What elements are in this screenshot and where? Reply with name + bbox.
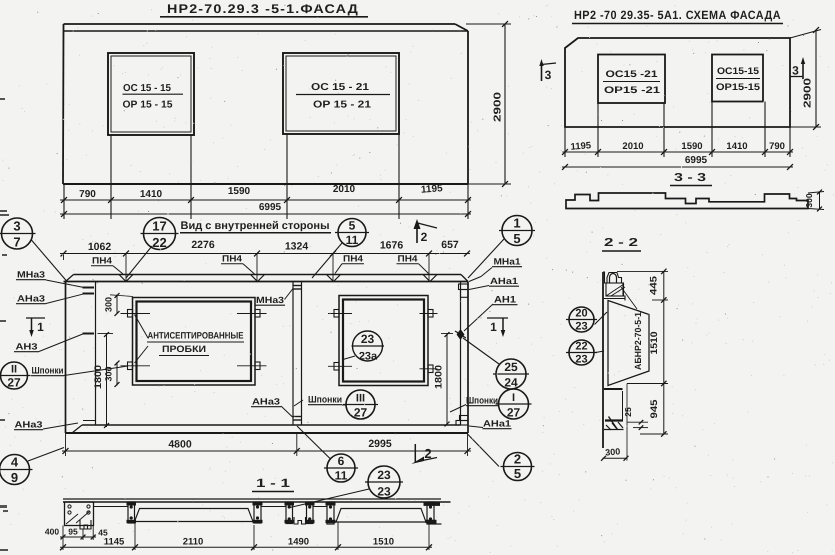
- svg-text:ОС15-15: ОС15-15: [717, 66, 760, 77]
- svg-text:Шпонки: Шпонки: [32, 366, 64, 377]
- svg-text:20: 20: [575, 308, 587, 320]
- svg-text:ПРОБКИ: ПРОБКИ: [162, 344, 206, 354]
- svg-text:17: 17: [152, 219, 166, 234]
- svg-text:23: 23: [575, 354, 587, 366]
- svg-text:657: 657: [441, 239, 459, 251]
- svg-text:1590: 1590: [681, 141, 702, 152]
- svg-text:2 - 2: 2 - 2: [604, 237, 638, 249]
- svg-text:МНа1: МНа1: [494, 257, 521, 267]
- svg-text:2: 2: [421, 230, 428, 244]
- svg-text:ОС 15 - 21: ОС 15 - 21: [311, 82, 370, 93]
- svg-text:5: 5: [349, 219, 356, 233]
- svg-text:22: 22: [575, 341, 587, 353]
- svg-text:25: 25: [623, 407, 633, 417]
- svg-text:22: 22: [152, 235, 166, 250]
- svg-text:2010: 2010: [622, 141, 643, 152]
- svg-text:1: 1: [37, 320, 44, 334]
- svg-text:5: 5: [514, 466, 521, 481]
- svg-text:1195: 1195: [570, 140, 592, 152]
- svg-text:790: 790: [79, 189, 96, 200]
- svg-text:2010: 2010: [333, 184, 356, 195]
- svg-text:2900: 2900: [493, 91, 504, 122]
- svg-text:ОС 15 - 15: ОС 15 - 15: [123, 83, 171, 94]
- svg-text:1410: 1410: [140, 189, 163, 200]
- svg-text:300: 300: [804, 193, 814, 207]
- svg-text:790: 790: [769, 141, 785, 152]
- svg-text:Шпонки: Шпонки: [466, 396, 498, 407]
- svg-text:11: 11: [346, 233, 359, 247]
- svg-text:ОР 15 - 15: ОР 15 - 15: [123, 100, 173, 111]
- svg-text:ПН4: ПН4: [222, 254, 242, 264]
- svg-text:1800: 1800: [434, 365, 445, 389]
- svg-text:2: 2: [424, 446, 431, 461]
- svg-text:3: 3: [13, 219, 20, 234]
- svg-text:2: 2: [514, 452, 521, 467]
- svg-text:445: 445: [649, 275, 660, 295]
- svg-text:3: 3: [792, 64, 799, 78]
- svg-text:ОР15 -21: ОР15 -21: [604, 85, 661, 96]
- svg-text:2995: 2995: [368, 438, 392, 450]
- svg-text:25: 25: [504, 360, 518, 374]
- svg-text:23а: 23а: [359, 351, 378, 363]
- svg-text:1590: 1590: [228, 186, 251, 197]
- svg-text:1510: 1510: [373, 537, 394, 548]
- svg-text:1676: 1676: [380, 240, 404, 252]
- svg-text:1510: 1510: [649, 332, 660, 355]
- svg-text:ОС15 -21: ОС15 -21: [606, 69, 659, 80]
- svg-text:ОР 15 - 21: ОР 15 - 21: [313, 100, 372, 111]
- svg-text:27: 27: [354, 406, 368, 420]
- svg-text:1145: 1145: [104, 537, 125, 548]
- svg-text:III: III: [356, 393, 365, 405]
- svg-text:1: 1: [513, 216, 520, 231]
- svg-text:МНа3: МНа3: [256, 295, 284, 305]
- svg-text:4800: 4800: [168, 439, 192, 451]
- svg-text:6995: 6995: [685, 155, 708, 166]
- svg-text:300: 300: [605, 446, 621, 457]
- svg-text:24: 24: [504, 376, 518, 390]
- svg-text:4: 4: [11, 455, 19, 470]
- svg-text:I: I: [512, 392, 515, 404]
- svg-text:1195: 1195: [421, 183, 444, 196]
- svg-text:АНа3: АНа3: [17, 294, 45, 304]
- svg-text:945: 945: [649, 399, 660, 419]
- svg-text:5: 5: [513, 231, 520, 246]
- svg-text:ПН4: ПН4: [343, 254, 363, 264]
- svg-text:II: II: [11, 364, 17, 376]
- svg-text:Вид с внутренней стороны: Вид с внутренней стороны: [181, 220, 330, 232]
- svg-text:3: 3: [545, 68, 552, 82]
- svg-text:1 - 1: 1 - 1: [256, 476, 290, 490]
- svg-text:2110: 2110: [183, 537, 204, 548]
- svg-text:ПН4: ПН4: [398, 254, 418, 264]
- svg-text:2276: 2276: [191, 239, 215, 251]
- svg-text:АНа1: АНа1: [483, 419, 511, 429]
- svg-text:1490: 1490: [288, 537, 309, 548]
- svg-text:11: 11: [335, 469, 348, 483]
- svg-text:1324: 1324: [285, 241, 309, 253]
- svg-text:23: 23: [361, 332, 375, 346]
- svg-text:3 - 3: 3 - 3: [674, 172, 706, 184]
- svg-text:6: 6: [338, 454, 345, 468]
- svg-text:АН1: АН1: [494, 295, 517, 306]
- svg-text:Шпонки: Шпонки: [308, 395, 342, 406]
- svg-text:МНа3: МНа3: [17, 270, 45, 280]
- svg-text:6995: 6995: [259, 202, 282, 213]
- svg-text:95: 95: [68, 527, 78, 537]
- svg-text:АНа3: АНа3: [15, 420, 43, 430]
- svg-text:23: 23: [575, 321, 587, 333]
- svg-text:9: 9: [11, 470, 18, 485]
- svg-text:1: 1: [490, 320, 497, 334]
- svg-text:ОР15-15: ОР15-15: [716, 82, 761, 93]
- svg-text:7: 7: [13, 235, 20, 250]
- svg-text:АБНР2-70-5-1: АБНР2-70-5-1: [633, 312, 643, 370]
- svg-text:1410: 1410: [726, 141, 747, 152]
- svg-text:400: 400: [45, 527, 59, 537]
- svg-text:АНа3: АНа3: [252, 397, 280, 407]
- svg-text:ПН4: ПН4: [92, 256, 112, 266]
- svg-text:АН3: АН3: [16, 342, 38, 352]
- svg-text:27: 27: [507, 406, 521, 420]
- svg-text:1062: 1062: [88, 241, 112, 253]
- svg-text:23: 23: [377, 468, 391, 482]
- svg-text:НР2 -70 29.35- 5А1. СХЕМА ФАС: НР2 -70 29.35- 5А1. СХЕМА ФАСАДА: [574, 8, 781, 22]
- svg-text:2900: 2900: [803, 77, 814, 108]
- svg-text:1800: 1800: [93, 365, 104, 389]
- svg-text:27: 27: [7, 376, 21, 390]
- svg-text:300: 300: [104, 297, 114, 312]
- svg-text:23: 23: [377, 485, 391, 499]
- svg-text:АНа1: АНа1: [490, 276, 518, 286]
- svg-text:НР2-70.29.3 -5-1.ФАСАД: НР2-70.29.3 -5-1.ФАСАД: [167, 2, 359, 16]
